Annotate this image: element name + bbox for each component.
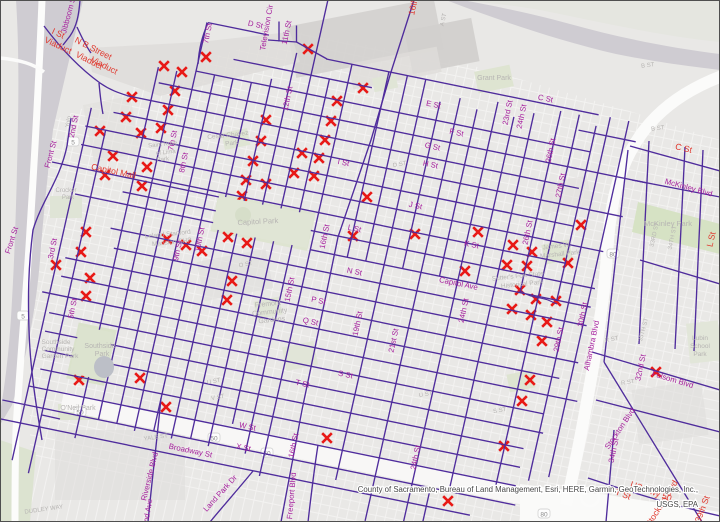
svg-text:Park: Park (95, 351, 110, 358)
svg-text:Community: Community (42, 346, 76, 353)
svg-text:Lubin: Lubin (692, 335, 708, 342)
svg-text:County of Sacramento, Bureau o: County of Sacramento, Bureau of Land Man… (358, 485, 698, 494)
svg-text:Southside: Southside (84, 343, 115, 350)
svg-text:5: 5 (71, 140, 75, 147)
svg-text:Garden Park: Garden Park (42, 353, 80, 360)
svg-text:McKinley Park: McKinley Park (644, 219, 692, 228)
svg-text:Park: Park (62, 195, 75, 201)
svg-text:Park: Park (225, 139, 240, 147)
svg-text:USGS, EPA: USGS, EPA (657, 500, 699, 509)
svg-text:School: School (690, 343, 710, 350)
svg-text:Park: Park (693, 351, 707, 358)
svg-text:O'Neil Park: O'Neil Park (60, 405, 96, 412)
svg-text:Crocker: Crocker (55, 188, 76, 194)
svg-text:Grant Park: Grant Park (477, 75, 511, 82)
svg-text:5: 5 (21, 314, 25, 321)
svg-text:Southside: Southside (42, 339, 71, 346)
svg-text:50: 50 (210, 436, 218, 443)
svg-text:80: 80 (540, 512, 548, 519)
